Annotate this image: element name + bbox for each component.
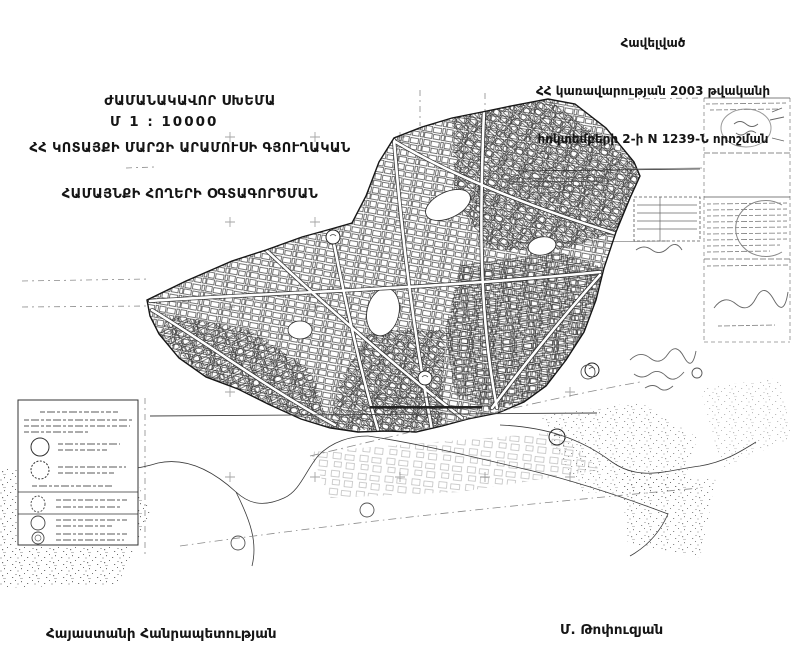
stamp-table [634,197,700,253]
footer-office-block: Հայաստանի Հանրապետության կառավարության ա… [46,594,292,653]
stamp-icon [736,201,782,257]
title-line2: ՀՀ ԿՈՏԱՅՔԻ ՄԱՐԶԻ ԱՐԱՄՈՒՍԻ ԳՅՈՒՂԱԿԱՆ [0,141,380,157]
appendix-reference: Հավելված ՀՀ կառավարության 2003 թվականի հ… [505,3,796,179]
appendix-line1: Հավելված [505,35,796,51]
approval-text-block [707,201,787,257]
title-line1: ԺԱՄԱՆԱԿԱՎՈՐ ՍԽԵՄԱ [0,94,380,110]
handwriting-scribble [630,349,696,390]
scanned-document-page: Հավելված ՀՀ կառավարության 2003 թվականի հ… [0,0,796,653]
map-legend-box [18,400,138,545]
signature-scribble [714,290,788,308]
appendix-line3: հոկտեմբերի 2-ի N 1239-Ն որոշման [505,131,796,147]
appendix-line2: ՀՀ կառավարության 2003 թվականի [505,83,796,99]
map-title: ԺԱՄԱՆԱԿԱՎՈՐ ՍԽԵՄԱ ՀՀ ԿՈՏԱՅՔԻ ՄԱՐԶԻ ԱՐԱՄՈ… [0,63,380,234]
signatory-name: Մ. Թոփուզյան [560,622,663,638]
footer-line1: Հայաստանի Հանրապետության [46,626,292,642]
scale-label: Մ 1 : 10000 [110,114,218,130]
title-line3: ՀԱՄԱՅՆՔԻ ՀՈՂԵՐԻ ՕԳՏԱԳՈՐԾՄԱՆ [0,187,380,203]
